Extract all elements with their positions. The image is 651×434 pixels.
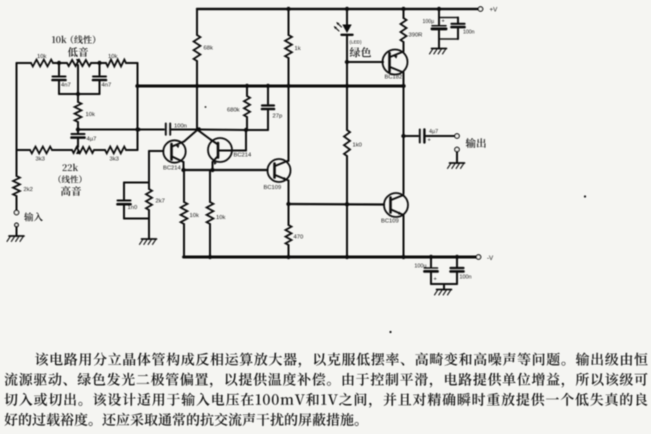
svg-text:-V: -V: [487, 255, 494, 262]
svg-text:27p: 27p: [273, 114, 283, 120]
svg-text:2k7: 2k7: [156, 199, 165, 205]
svg-text:BC109: BC109: [381, 219, 399, 225]
svg-text:470: 470: [294, 235, 304, 241]
svg-text:4µ7: 4µ7: [87, 137, 97, 143]
svg-text:680k: 680k: [227, 108, 240, 114]
svg-text:+: +: [442, 19, 445, 25]
svg-text:4µ7: 4µ7: [429, 129, 438, 135]
svg-text:390R: 390R: [409, 33, 423, 39]
svg-text:10k: 10k: [190, 213, 199, 219]
svg-text:4n7: 4n7: [102, 83, 112, 89]
svg-text:1k0: 1k0: [353, 143, 362, 149]
svg-text:10k: 10k: [216, 215, 225, 221]
svg-text:+: +: [434, 277, 437, 283]
svg-text:BC214: BC214: [234, 153, 253, 159]
svg-text:BC109: BC109: [264, 185, 282, 191]
svg-text:2k2: 2k2: [24, 187, 33, 193]
svg-text:1n0: 1n0: [128, 205, 138, 211]
svg-text:100n: 100n: [463, 30, 475, 36]
svg-text:10k: 10k: [37, 54, 46, 60]
svg-text:+V: +V: [490, 7, 499, 14]
svg-text:100µ: 100µ: [414, 264, 426, 270]
svg-text:10k: 10k: [86, 112, 95, 118]
svg-text:100n: 100n: [174, 124, 187, 130]
svg-text:(LED): (LED): [350, 40, 362, 45]
svg-text:BC214: BC214: [163, 166, 182, 172]
svg-text:4n7: 4n7: [61, 83, 71, 89]
svg-text:BC182: BC182: [385, 75, 403, 81]
svg-text:100n: 100n: [460, 275, 472, 281]
svg-text:3k3: 3k3: [36, 157, 45, 163]
svg-text:1k: 1k: [295, 46, 301, 52]
svg-text:+: +: [428, 138, 431, 144]
svg-text:100µ: 100µ: [423, 19, 435, 25]
svg-text:10k: 10k: [108, 54, 117, 60]
svg-text:68k: 68k: [204, 46, 213, 52]
svg-text:3k3: 3k3: [110, 157, 119, 163]
